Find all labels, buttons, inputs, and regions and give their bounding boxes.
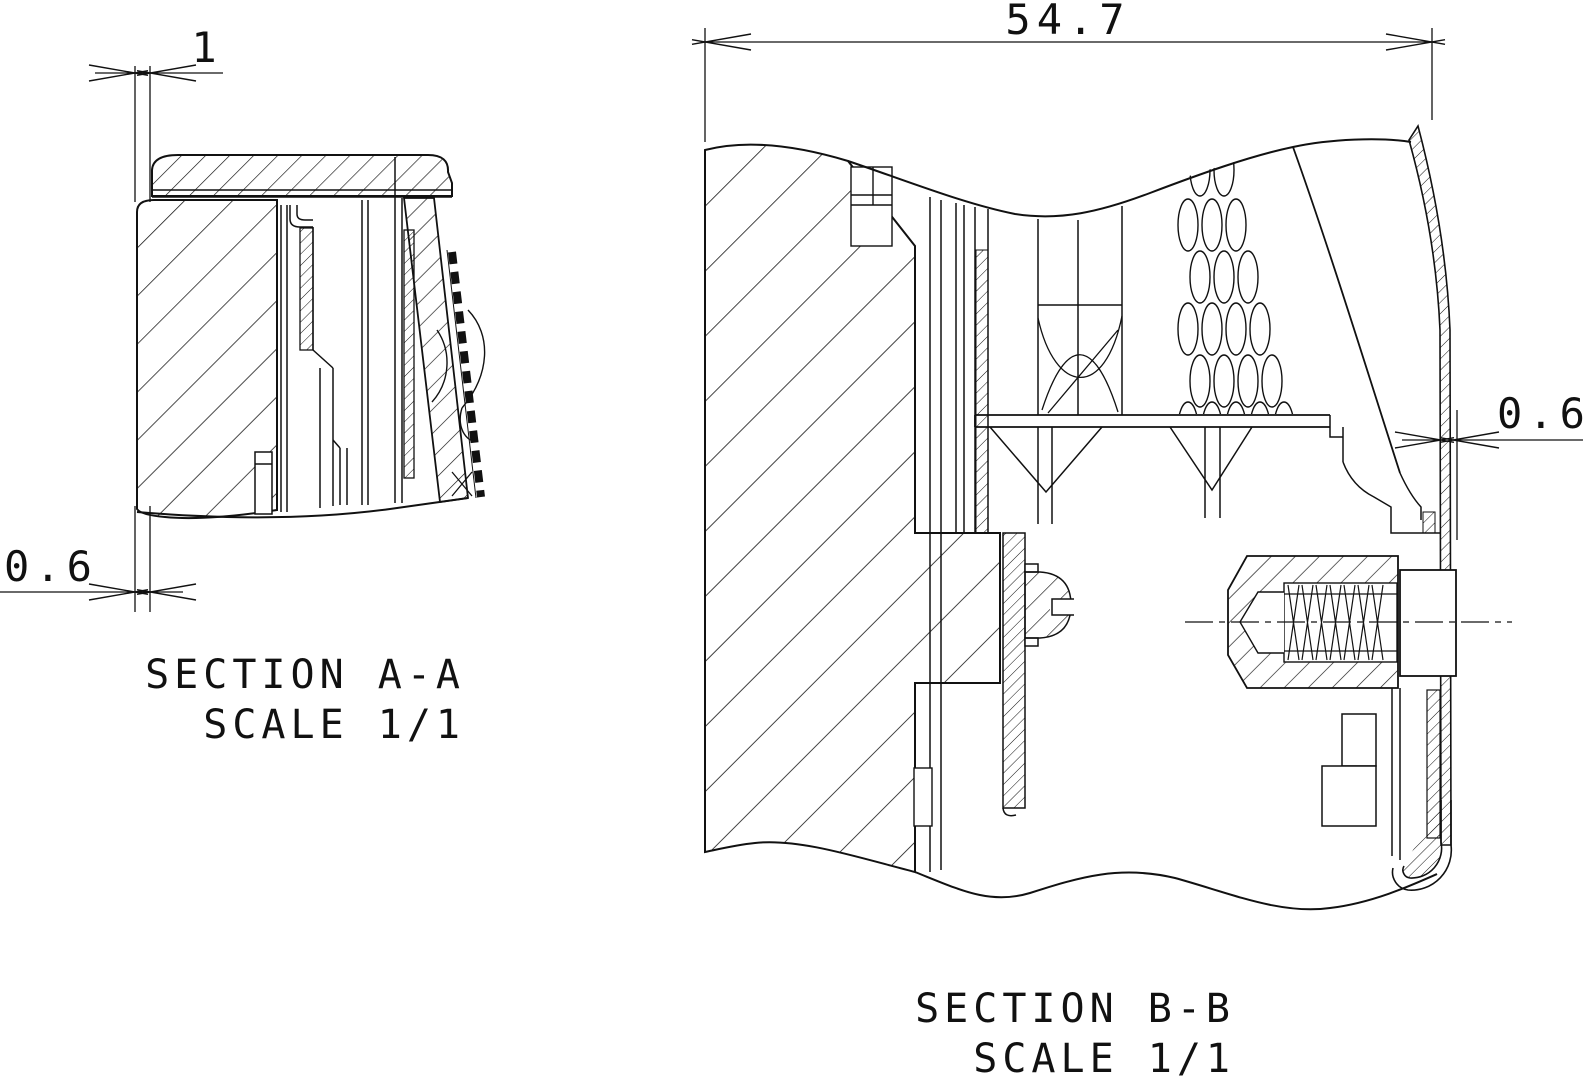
section-b-title: SECTION B-B — [915, 986, 1235, 1032]
dim-b-wall-value: 0.6 — [1497, 389, 1583, 438]
clinch-nut-block — [1400, 570, 1456, 676]
support-cone-right — [1170, 427, 1252, 490]
wall-bracket-lines — [1343, 462, 1440, 533]
section-a-view — [0, 65, 485, 612]
dim-a-top-value: 1 — [191, 23, 222, 72]
perforation-row-2 — [1190, 251, 1258, 303]
pan-screw-assembly — [1003, 533, 1074, 816]
screw-slot — [1050, 599, 1074, 615]
perforation-row-1 — [1178, 199, 1246, 251]
threaded-insert — [1185, 556, 1512, 688]
section-a-title: SECTION A-A — [145, 652, 465, 698]
bottom-break-line — [915, 872, 1437, 909]
perforation-grid — [1178, 144, 1294, 454]
thin-plate-section-2 — [404, 230, 414, 478]
perforation-row-3 — [1178, 303, 1270, 355]
section-b-scale: SCALE 1/1 — [973, 1036, 1235, 1080]
knob-body-section — [137, 200, 277, 518]
shell-inner-slant — [1293, 147, 1400, 473]
perforation-row-4 — [1190, 355, 1282, 407]
section-b-view — [692, 28, 1583, 909]
thin-plate-section-1 — [300, 228, 313, 350]
top-break-line — [848, 139, 1411, 216]
support-plate — [975, 415, 1343, 524]
dim-b-width — [692, 28, 1445, 142]
drawing-sheet: 1 0.6 SECTION A-A SCALE 1/1 54.7 0.6 SEC… — [0, 0, 1583, 1080]
screw-boss-tube — [1038, 206, 1122, 415]
engineering-drawing: 1 0.6 SECTION A-A SCALE 1/1 54.7 0.6 SEC… — [0, 0, 1583, 1080]
dim-a-bottom-value: 0.6 — [4, 542, 98, 591]
inner-housing-lines — [281, 157, 402, 512]
section-a-scale: SCALE 1/1 — [203, 702, 465, 748]
perforation-row-5 — [1178, 402, 1294, 454]
drill-point-curves — [1038, 316, 1122, 413]
top-boss-detail — [851, 167, 892, 246]
cap-top-section — [152, 155, 452, 197]
dim-b-width-value: 54.7 — [1005, 0, 1130, 44]
support-cone-left — [990, 427, 1102, 492]
